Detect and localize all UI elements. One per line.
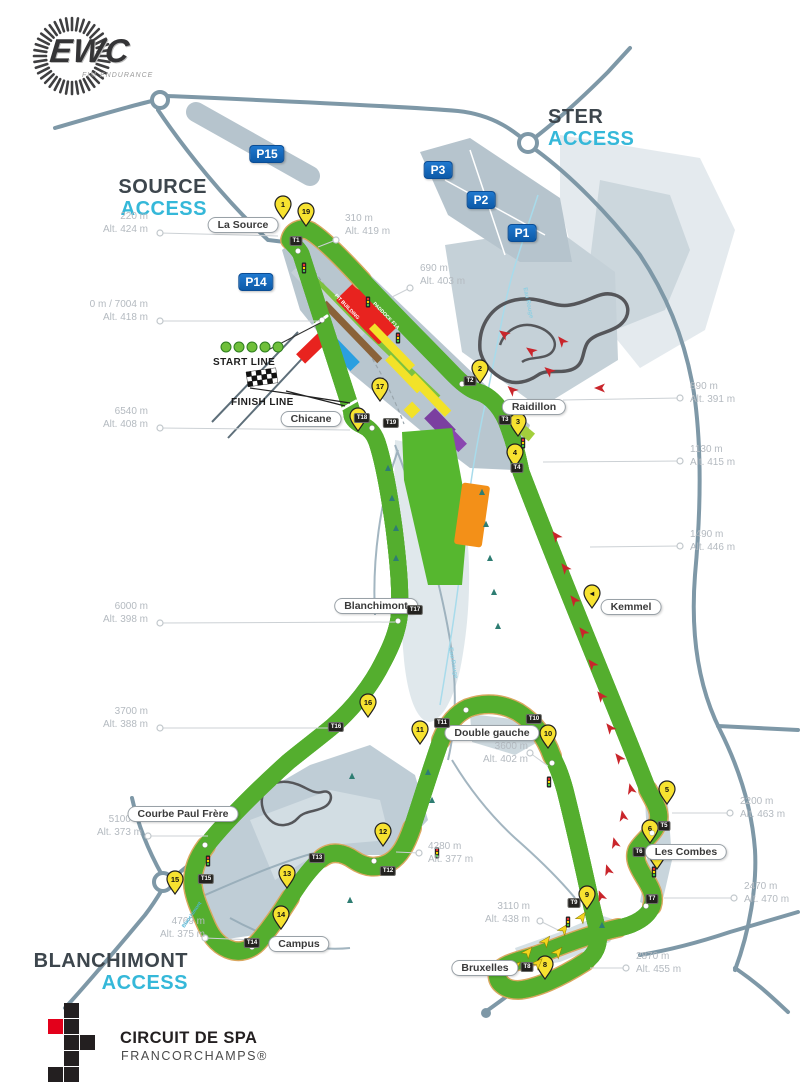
svg-text:3: 3 [516, 417, 520, 426]
spectator-flow-arrow [609, 836, 621, 849]
track-post-dot [319, 317, 324, 322]
signal-icon [566, 917, 570, 928]
marshal-pin: 11 [412, 721, 428, 744]
marker-dot [407, 285, 413, 291]
signal-icon [396, 333, 400, 344]
signal-icon [547, 777, 551, 788]
svg-text:12: 12 [379, 827, 387, 836]
marshal-pin: ◄ [584, 585, 600, 608]
signal-icon [652, 867, 656, 878]
marker-dot [623, 965, 629, 971]
start-light [221, 342, 231, 352]
checkered-flag-icon [261, 369, 267, 375]
track-post-dot [649, 830, 654, 835]
checkered-flag-icon [272, 378, 278, 384]
tree-icon [491, 589, 497, 595]
checkered-flag-icon [246, 371, 252, 377]
marker-dot [677, 543, 683, 549]
spectator-flow-arrow [617, 809, 628, 822]
svg-text:◄: ◄ [588, 589, 595, 598]
svg-text:2: 2 [478, 364, 482, 373]
svg-text:10: 10 [544, 729, 552, 738]
svg-text:17: 17 [376, 382, 384, 391]
checkered-flag-icon [266, 369, 272, 375]
marker-dot [157, 425, 163, 431]
checkered-flag-icon [262, 374, 268, 380]
checkered-flag-icon [256, 370, 262, 376]
marker-dot [202, 935, 208, 941]
marker-leader [160, 428, 350, 430]
svg-text:13: 13 [283, 869, 291, 878]
checkered-flag-icon [247, 376, 253, 382]
spectator-flow-arrow [602, 863, 614, 876]
marker-leader [563, 398, 680, 400]
svg-text:18: 18 [354, 412, 362, 421]
checkered-flag-icon [252, 381, 258, 387]
track-post-dot [295, 248, 300, 253]
checkered-flag-icon [247, 381, 253, 387]
signal-icon [435, 848, 439, 859]
signal-icon [302, 263, 306, 274]
spectator-flow-arrow [625, 782, 637, 795]
marker-dot [157, 230, 163, 236]
marker-leader [160, 622, 396, 623]
roundabout [152, 92, 168, 108]
marker-dot [157, 725, 163, 731]
track-post-dot [494, 968, 499, 973]
checkered-flag-icon [271, 373, 277, 379]
checkered-flag-icon [267, 373, 273, 379]
marker-dot [145, 833, 151, 839]
spa-circuit-map: 119234◄56789101112131415161718 EWC FIM E… [0, 0, 800, 1082]
checkered-flag-icon [252, 376, 258, 382]
road-end [481, 1008, 491, 1018]
spectator-flow-arrow [594, 384, 605, 393]
start-light [260, 342, 270, 352]
marker-dot [731, 895, 737, 901]
svg-text:8: 8 [543, 960, 547, 969]
svg-text:19: 19 [302, 207, 310, 216]
track-post-dot [549, 760, 554, 765]
track-post-dot [369, 425, 374, 430]
start-light [234, 342, 244, 352]
marshal-pin: 16 [360, 694, 376, 717]
svg-text:9: 9 [585, 890, 589, 899]
track-post-dot [371, 858, 376, 863]
marker-dot [537, 918, 543, 924]
signal-icon [521, 438, 525, 449]
marker-leader [590, 546, 680, 547]
tree-icon [347, 897, 353, 903]
svg-text:5: 5 [665, 785, 669, 794]
marshal-pin: 1 [275, 196, 291, 219]
track-post-dot [463, 707, 468, 712]
checkered-flag-icon [257, 375, 263, 381]
start-light [273, 342, 283, 352]
marker-dot [333, 237, 339, 243]
svg-text:11: 11 [416, 725, 424, 734]
marker-dot [157, 318, 163, 324]
checkered-flag-icon [262, 379, 268, 385]
svg-text:14: 14 [277, 910, 286, 919]
track-post-dot [395, 618, 400, 623]
checkered-flag-icon [257, 380, 263, 386]
marker-dot [677, 458, 683, 464]
svg-text:7: 7 [655, 850, 659, 859]
track-post-dot [202, 842, 207, 847]
svg-text:15: 15 [171, 875, 179, 884]
start-light [247, 342, 257, 352]
checkered-flag-icon [251, 371, 257, 377]
svg-text:1: 1 [281, 200, 285, 209]
roundabout [519, 134, 537, 152]
track-post-dot [459, 381, 464, 386]
marker-dot [677, 395, 683, 401]
track-post-dot [643, 903, 648, 908]
tree-icon [487, 555, 493, 561]
marker-dot [527, 750, 533, 756]
marker-dot [157, 620, 163, 626]
spectator-flow-arrow [612, 751, 626, 765]
checkered-flag-icon [267, 378, 273, 384]
marker-dot [416, 850, 422, 856]
marker-dot [727, 810, 733, 816]
circuit-map-svg: 119234◄56789101112131415161718 [0, 0, 800, 1082]
marker-leader [543, 461, 680, 462]
tree-icon [495, 623, 501, 629]
svg-text:16: 16 [364, 698, 372, 707]
track-post-dot [249, 944, 254, 949]
signal-icon [206, 856, 210, 867]
signal-icon [366, 297, 370, 308]
checkered-flag-icon [271, 368, 277, 374]
